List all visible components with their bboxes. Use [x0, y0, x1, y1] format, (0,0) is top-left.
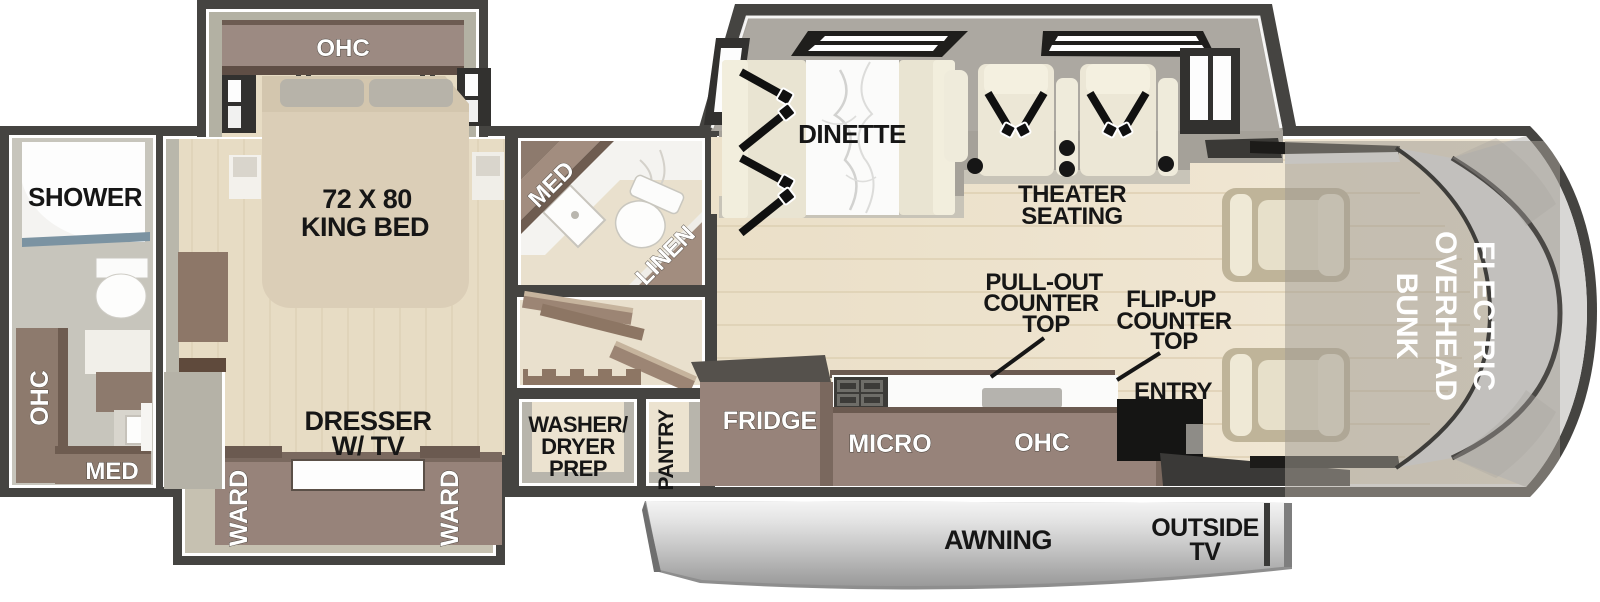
svg-text:KING BED: KING BED — [301, 212, 429, 242]
svg-text:OHC: OHC — [316, 35, 369, 62]
svg-text:PREP: PREP — [549, 456, 607, 481]
svg-text:OHC: OHC — [1014, 429, 1070, 457]
svg-text:MED: MED — [85, 458, 138, 485]
svg-text:FRIDGE: FRIDGE — [723, 407, 817, 435]
svg-text:TOP: TOP — [1150, 328, 1198, 355]
svg-text:ELECTRIC: ELECTRIC — [1467, 241, 1500, 391]
svg-text:OVERHEAD: OVERHEAD — [1429, 231, 1462, 401]
svg-text:SHOWER: SHOWER — [28, 182, 143, 212]
svg-text:72 X 80: 72 X 80 — [322, 184, 412, 214]
svg-text:WARD: WARD — [225, 470, 253, 546]
svg-text:AWNING: AWNING — [944, 525, 1052, 555]
svg-text:ENTRY: ENTRY — [1134, 378, 1212, 405]
svg-text:SEATING: SEATING — [1021, 203, 1122, 230]
svg-text:DINETTE: DINETTE — [798, 119, 906, 149]
svg-text:WARD: WARD — [436, 470, 464, 546]
svg-text:MICRO: MICRO — [848, 430, 931, 458]
svg-text:TV: TV — [1190, 538, 1222, 566]
svg-text:W/ TV: W/ TV — [332, 431, 405, 461]
svg-text:TOP: TOP — [1022, 311, 1070, 338]
svg-text:BUNK: BUNK — [1390, 273, 1423, 360]
svg-text:PANTRY: PANTRY — [655, 409, 678, 490]
svg-text:OHC: OHC — [26, 370, 54, 426]
